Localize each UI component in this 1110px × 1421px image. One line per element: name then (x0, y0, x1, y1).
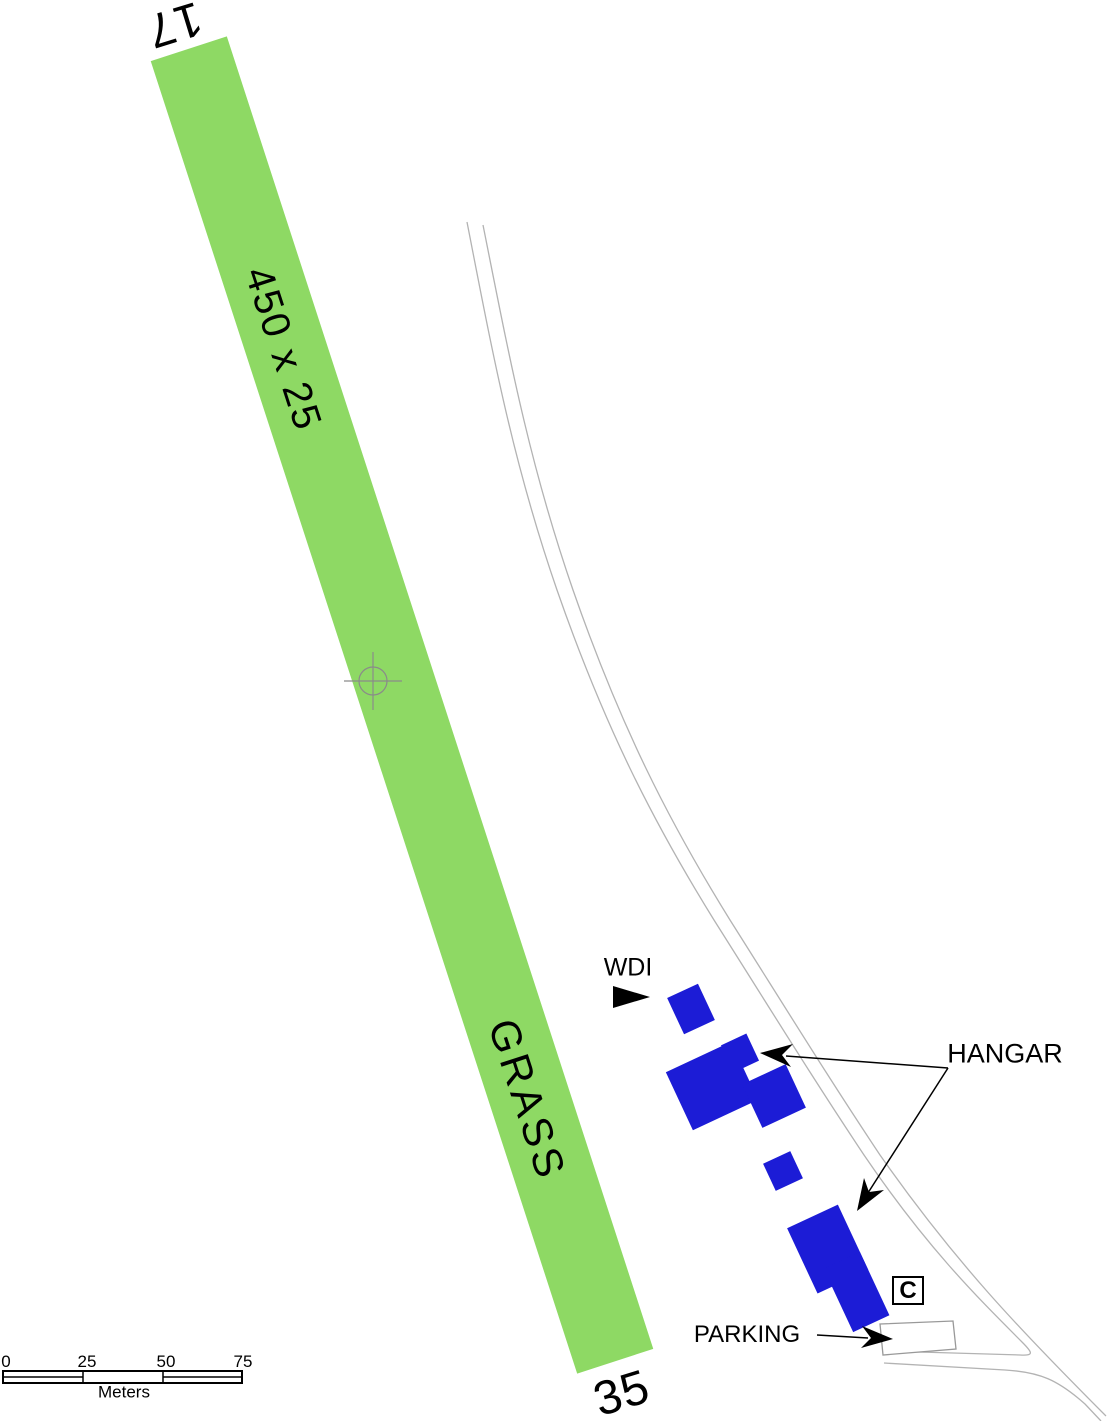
hangar-arrow-line-lower (866, 1068, 948, 1196)
airfield-diagram: 17 35 450 x 25 GRASS WDI HANGAR PARKING … (0, 0, 1110, 1421)
hangar-arrow-line-upper (786, 1056, 948, 1068)
road-branch-line (884, 1363, 1101, 1421)
scale-tick-50: 50 (157, 1352, 176, 1372)
parking-arrow-line (817, 1335, 868, 1338)
parking-label: PARKING (694, 1323, 800, 1347)
hangar-label: HANGAR (947, 1041, 1063, 1068)
wdi-icon (613, 986, 650, 1008)
parking-area (880, 1321, 956, 1355)
hangar-building-shed (763, 1151, 803, 1191)
c-marker-box: C (892, 1276, 924, 1305)
hangar-building-annex (742, 1064, 806, 1128)
buildings (666, 984, 890, 1332)
hangar-callout (760, 1044, 948, 1211)
scale-bar (3, 1371, 242, 1383)
scale-tick-25: 25 (78, 1352, 97, 1372)
c-marker-label: C (899, 1277, 916, 1305)
scale-tick-75: 75 (234, 1352, 253, 1372)
scale-unit-label: Meters (98, 1384, 150, 1401)
hangar-arrowhead-lower (857, 1178, 884, 1211)
scale-tick-0: 0 (1, 1352, 10, 1372)
diagram-canvas (0, 0, 1110, 1421)
wdi-label: WDI (604, 956, 653, 981)
runway-strip (151, 36, 654, 1373)
hangar-building-small-north (667, 984, 715, 1035)
